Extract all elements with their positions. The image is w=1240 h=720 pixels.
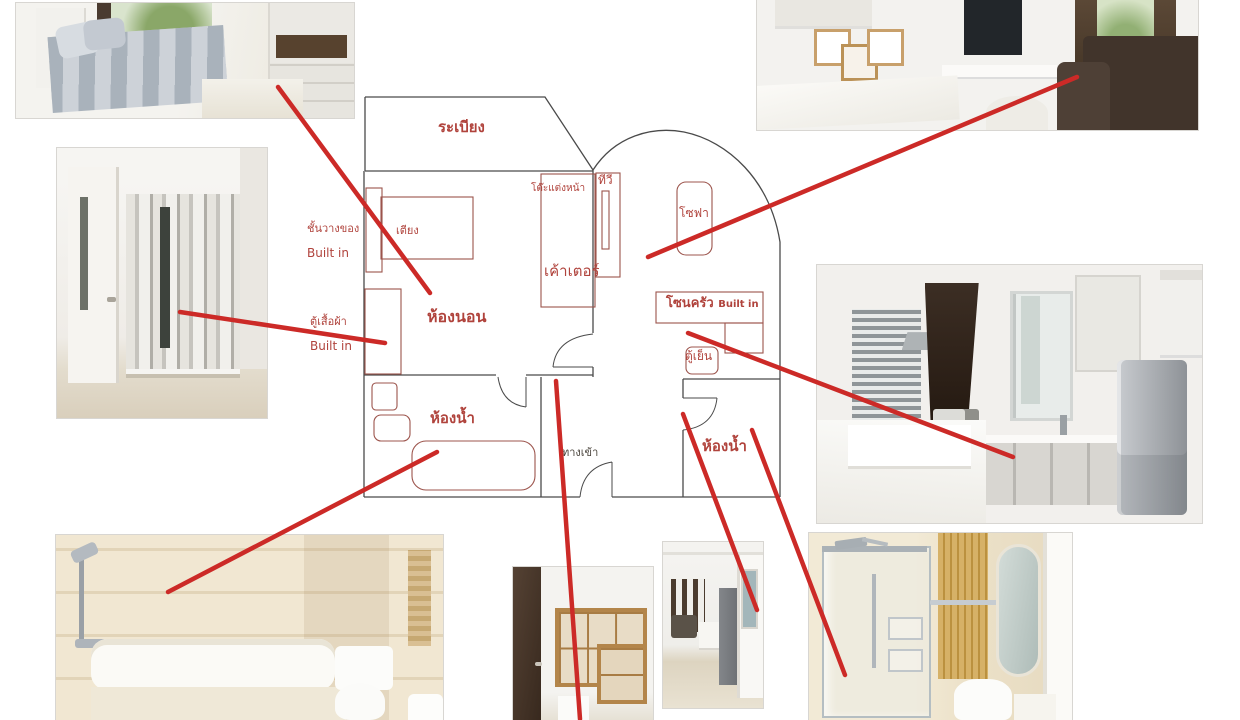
annotation-lines	[0, 0, 1240, 720]
annotation-line-bathroom-right-door-plan	[683, 414, 757, 610]
annotation-line-bedroom-photo	[278, 87, 430, 293]
annotation-line-bathtub-plan	[168, 452, 437, 592]
condo-listing-collage: ระเบียง เตียง ชั้นวางของ Built in ตู้เสื…	[0, 0, 1240, 720]
annotation-line-bathroom-right-plan	[752, 430, 845, 675]
annotation-line-hallway-photo	[180, 312, 385, 343]
annotation-line-entrance-plan	[556, 381, 580, 719]
annotation-line-living-room-photo	[648, 77, 1077, 257]
annotation-line-kitchen-zone-plan	[688, 333, 1013, 457]
